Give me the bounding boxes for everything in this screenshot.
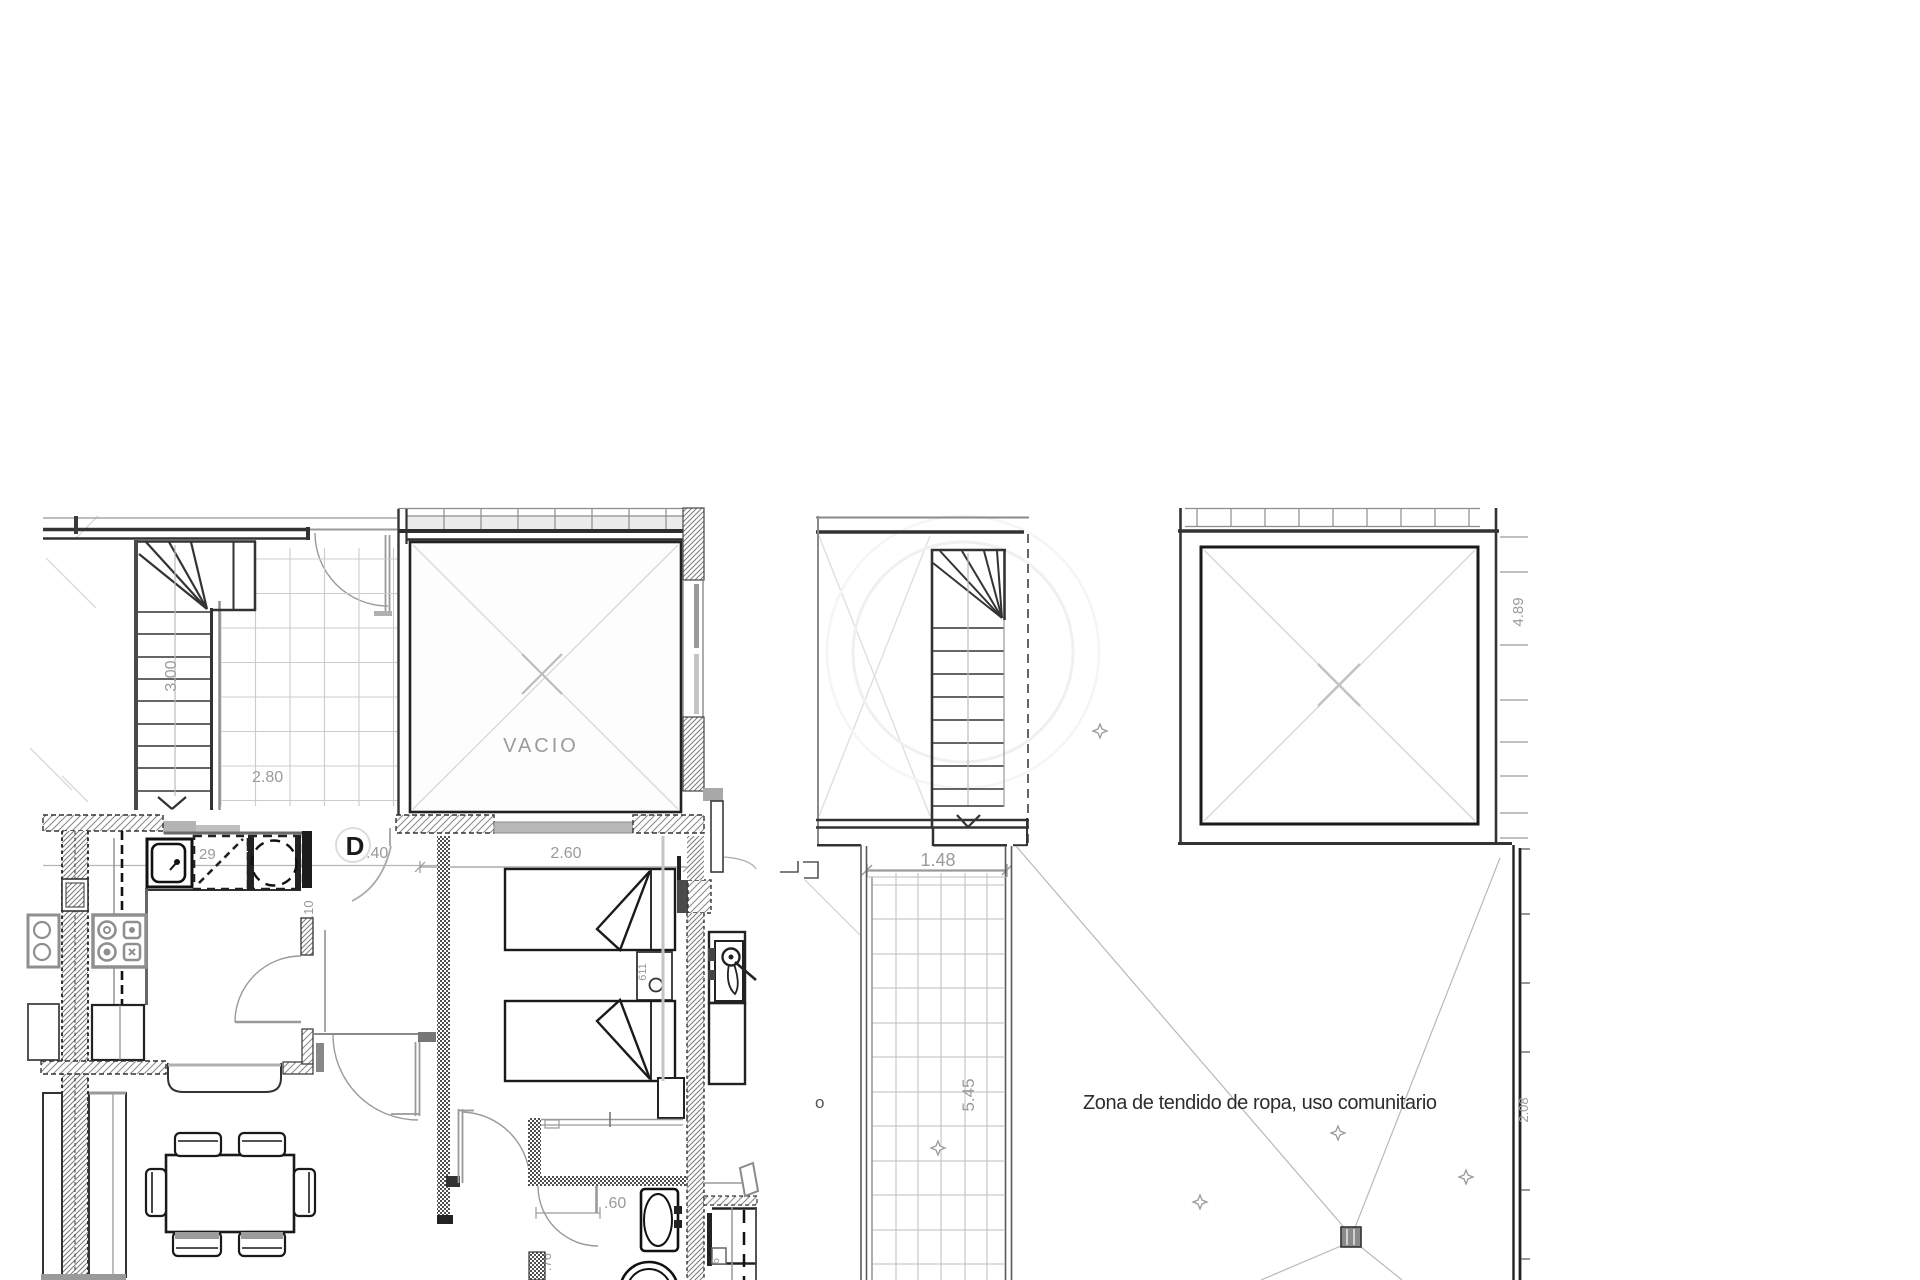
svg-text:VACIO: VACIO: [503, 735, 579, 757]
svg-text:2.08: 2.08: [1516, 1097, 1531, 1122]
svg-text:2.80: 2.80: [252, 769, 283, 786]
svg-text:5.45: 5.45: [959, 1078, 978, 1111]
svg-text:3.00: 3.00: [163, 660, 180, 691]
svg-text:29: 29: [199, 846, 216, 863]
svg-text:Zona de tendido de ropa, uso c: Zona de tendido de ropa, uso comunitario: [1083, 1092, 1437, 1114]
svg-text:2.60: 2.60: [550, 845, 581, 862]
svg-text:D: D: [346, 831, 365, 861]
svg-text:6: 6: [710, 1258, 722, 1264]
svg-text:1.48: 1.48: [920, 850, 955, 870]
svg-text:.40: .40: [366, 845, 388, 862]
svg-text:.60: .60: [604, 1195, 626, 1212]
svg-text:o: o: [815, 1093, 824, 1112]
svg-text:4.89: 4.89: [1510, 597, 1527, 626]
svg-text:611: 611: [637, 963, 649, 981]
